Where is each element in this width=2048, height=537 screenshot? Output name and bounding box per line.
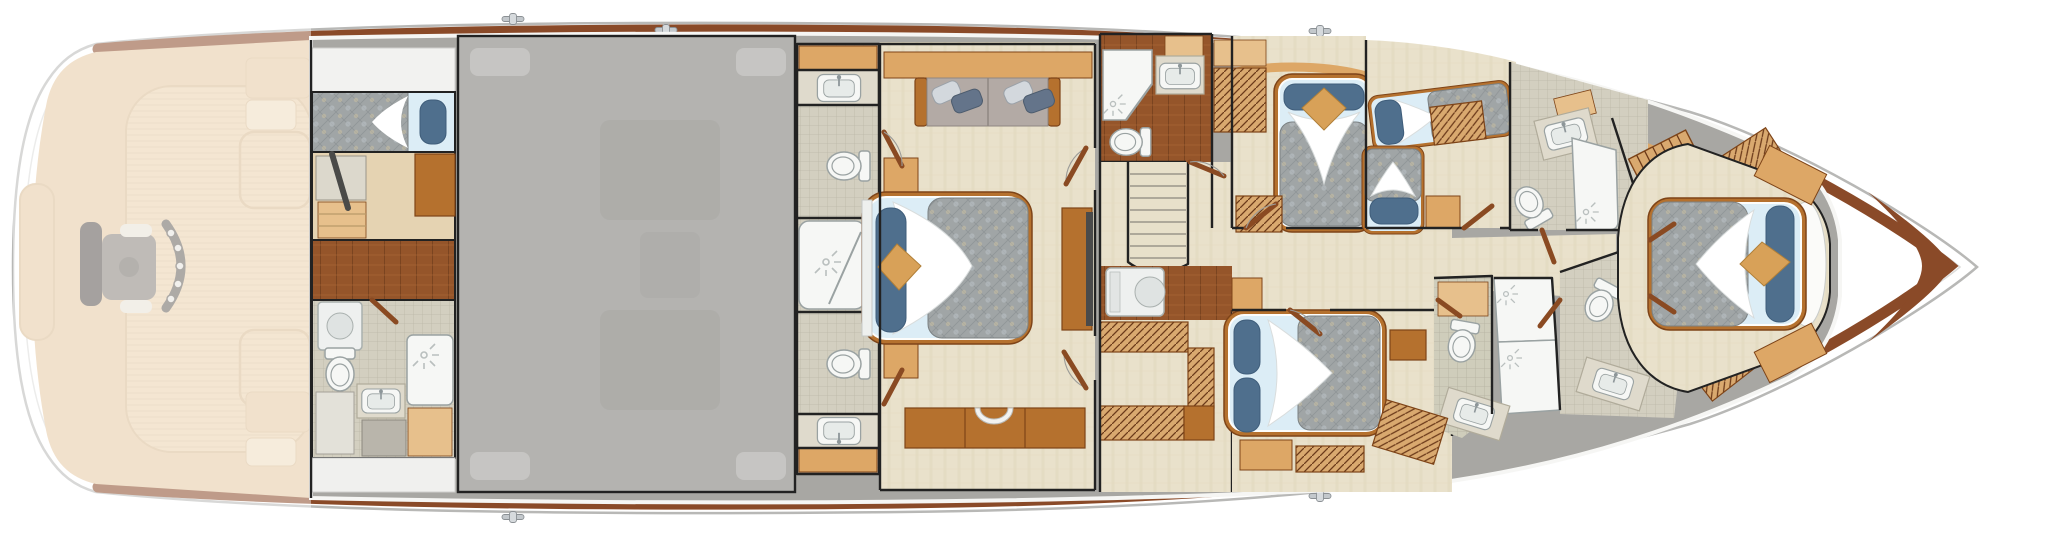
engine-room [458, 36, 795, 492]
queen-bed [1274, 74, 1374, 232]
washer-dryer [1106, 268, 1165, 316]
single-berth [1362, 146, 1424, 234]
crew-berth [312, 92, 455, 152]
side-walkway [312, 458, 455, 492]
crew-head [312, 300, 455, 492]
drawer-chest [1214, 68, 1266, 132]
staircase [1128, 162, 1188, 273]
sofa [915, 78, 1060, 126]
nightstand [1240, 440, 1292, 470]
hanging-locker [415, 154, 455, 216]
shelf [884, 52, 1092, 78]
cabinet [362, 420, 406, 456]
guest-stateroom-forward [1212, 36, 1374, 232]
deck-plan-canvas [0, 0, 2048, 537]
cleat-icon [1309, 26, 1331, 37]
deck-plan-svg [0, 0, 2048, 537]
queen-bed [1224, 310, 1386, 436]
crew-quarters [312, 48, 455, 300]
hanging-locker [1188, 348, 1214, 408]
cabinet [1438, 282, 1488, 316]
shower [799, 221, 865, 309]
toilet [325, 348, 355, 391]
drawer-chest [1296, 446, 1364, 472]
day-head [1100, 34, 1212, 162]
shower [1498, 340, 1560, 414]
nightstand [1426, 196, 1460, 228]
dresser [905, 408, 1085, 448]
vip-stateroom [1618, 144, 1830, 392]
crew-steps [318, 202, 366, 238]
lockers [316, 392, 354, 454]
drawer-chest [1100, 322, 1188, 352]
shower [407, 335, 453, 405]
shower [1494, 278, 1556, 342]
cabinet [408, 408, 452, 456]
side-walkway [312, 48, 455, 92]
cabinet [799, 448, 877, 472]
toilet [1110, 128, 1151, 157]
cockpit-ghost-overlay [13, 24, 311, 514]
sink [817, 418, 860, 445]
cabinet [1165, 36, 1203, 56]
drawer-chest [1430, 101, 1486, 145]
cabinet [1390, 330, 1426, 360]
shower [1572, 138, 1618, 230]
cabinet [799, 46, 877, 70]
toilet [827, 151, 870, 181]
sink [362, 389, 400, 413]
master-stateroom [862, 42, 1095, 490]
drawer-chest [1100, 406, 1184, 440]
master-bed [862, 192, 1032, 344]
cabinet [1214, 40, 1266, 66]
crew-corridor [312, 240, 455, 300]
drawer-chest [1236, 196, 1282, 232]
cabinet [1184, 406, 1214, 440]
nightstand [1232, 278, 1262, 312]
sink [817, 75, 860, 102]
toilet [827, 349, 870, 379]
tv-cabinet [1062, 208, 1093, 330]
sink [1160, 63, 1201, 89]
